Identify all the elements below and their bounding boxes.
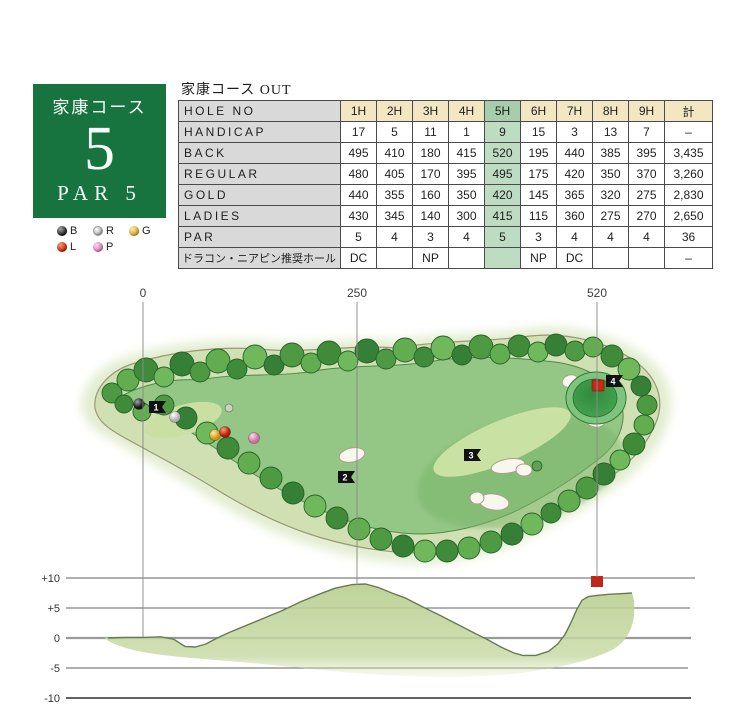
par-label: PAR 5 (33, 181, 166, 206)
legend-item-ladies: L (57, 241, 93, 253)
cell: 410 (377, 143, 413, 164)
legend-item-gold: G (129, 225, 165, 237)
cell: 4 (377, 227, 413, 248)
cell: 7 (629, 122, 665, 143)
course-plan: 1 2 3 4 (81, 327, 671, 563)
cell: 5 (377, 122, 413, 143)
tee-positions (134, 399, 260, 444)
elevation-profile: +10 +5 0 -5 -10 (41, 573, 695, 705)
cell: 270 (629, 206, 665, 227)
hole-marker-2: 2 (338, 471, 355, 483)
cell: 計 (665, 101, 713, 122)
table-row-ladies: LADIES 430 345 140 300 415 115 360 275 2… (179, 206, 713, 227)
cell: – (665, 248, 713, 269)
cell (629, 248, 665, 269)
cell: 275 (593, 206, 629, 227)
cell: 9H (629, 101, 665, 122)
cell: – (665, 122, 713, 143)
bunkers (338, 373, 607, 512)
cell: 370 (629, 164, 665, 185)
legend-label: R (106, 225, 114, 237)
distance-label-520: 520 (587, 286, 607, 300)
cell: 2,830 (665, 185, 713, 206)
cell: 345 (377, 206, 413, 227)
cell-highlight (485, 248, 521, 269)
hole-number: 5 (33, 120, 166, 178)
cell: 8H (593, 101, 629, 122)
tee-dot-silver-icon (93, 226, 103, 236)
cell (377, 248, 413, 269)
cell: 415 (449, 143, 485, 164)
cell: 395 (629, 143, 665, 164)
cell-highlight: 5 (485, 227, 521, 248)
cell: 365 (557, 185, 593, 206)
cell: 350 (449, 185, 485, 206)
elevation-area (105, 584, 634, 677)
ytick-zero: 0 (54, 633, 60, 645)
score-table-title: 家康コース OUT (181, 79, 292, 99)
light-strip (426, 394, 579, 490)
cell: 350 (593, 164, 629, 185)
svg-text:3: 3 (468, 451, 473, 461)
cell: 420 (557, 164, 593, 185)
svg-text:4: 4 (610, 377, 615, 387)
cell: 11 (413, 122, 449, 143)
cell: 145 (521, 185, 557, 206)
cell: 3,260 (665, 164, 713, 185)
cell: 195 (521, 143, 557, 164)
svg-text:2: 2 (342, 473, 347, 483)
course-title-box: 家康コース 5 PAR 5 (33, 84, 166, 218)
tee-ball-silver (170, 412, 181, 423)
cell: 440 (557, 143, 593, 164)
cell: 4 (629, 227, 665, 248)
putting-green (566, 372, 626, 424)
cell: 160 (413, 185, 449, 206)
legend-label: L (70, 241, 76, 253)
cell: 320 (593, 185, 629, 206)
green-flag-icon (592, 380, 604, 391)
cell: 5 (341, 227, 377, 248)
hole-marker-1: 1 (149, 401, 166, 413)
legend-label: P (106, 241, 113, 253)
row-label: ドラコン・ニアピン推奨ホール (179, 248, 341, 269)
cell: 480 (341, 164, 377, 185)
cell: 3,435 (665, 143, 713, 164)
row-label: REGULAR (179, 164, 341, 185)
row-label: PAR (179, 227, 341, 248)
cell: 275 (629, 185, 665, 206)
cell: DC (341, 248, 377, 269)
distance-label-0: 0 (140, 286, 147, 300)
cell: 1H (341, 101, 377, 122)
row-label: HOLE NO (179, 101, 341, 122)
tee-dot-black-icon (57, 226, 67, 236)
cell-highlight: 520 (485, 143, 521, 164)
cell: 3H (413, 101, 449, 122)
legend-label: B (70, 225, 77, 237)
cell-highlight: 5H (485, 101, 521, 122)
table-row-regular: REGULAR 480 405 170 395 495 175 420 350 … (179, 164, 713, 185)
tee-dot-red-icon (57, 242, 67, 252)
cell: 4H (449, 101, 485, 122)
row-label: BACK (179, 143, 341, 164)
ytick-minus10: -10 (44, 693, 60, 705)
cell: 495 (341, 143, 377, 164)
tee-area (140, 395, 225, 446)
table-row-back: BACK 495 410 180 415 520 195 440 385 395… (179, 143, 713, 164)
cell: 440 (341, 185, 377, 206)
tee-ball-red (220, 427, 231, 438)
cell (449, 248, 485, 269)
ytick-minus5: -5 (50, 663, 60, 675)
cell-highlight: 420 (485, 185, 521, 206)
cell: 6H (521, 101, 557, 122)
tee-dot-pink-icon (93, 242, 103, 252)
tee-ball-black (134, 399, 145, 410)
tee-dot-gold-icon (129, 226, 139, 236)
cell: 395 (449, 164, 485, 185)
cell: 385 (593, 143, 629, 164)
fairway (118, 357, 623, 534)
row-label: LADIES (179, 206, 341, 227)
table-row-gold: GOLD 440 355 160 350 420 145 365 320 275… (179, 185, 713, 206)
ytick-plus10: +10 (41, 573, 60, 585)
distance-label-250: 250 (347, 286, 367, 300)
table-row-holeno: HOLE NO 1H 2H 3H 4H 5H 6H 7H 8H 9H 計 (179, 101, 713, 122)
cell: 360 (557, 206, 593, 227)
table-row-handicap: HANDICAP 17 5 11 1 9 15 3 13 7 – (179, 122, 713, 143)
cell: 4 (557, 227, 593, 248)
tee-legend: B R G L P (57, 225, 165, 253)
hole-marker-4: 4 (606, 375, 623, 387)
cell-highlight: 415 (485, 206, 521, 227)
cell: 175 (521, 164, 557, 185)
cell (593, 248, 629, 269)
boundary-band (95, 335, 660, 553)
cell: 115 (521, 206, 557, 227)
cell: NP (521, 248, 557, 269)
cell: 36 (665, 227, 713, 248)
cell-highlight: 9 (485, 122, 521, 143)
cell: 4 (593, 227, 629, 248)
cell: 355 (377, 185, 413, 206)
cell: 4 (449, 227, 485, 248)
cell: DC (557, 248, 593, 269)
cell-highlight: 495 (485, 164, 521, 185)
distance-markers: 0 250 520 (140, 286, 608, 637)
cell: NP (413, 248, 449, 269)
pebble (225, 404, 233, 412)
cell: 13 (593, 122, 629, 143)
cell: 430 (341, 206, 377, 227)
legend-item-regular: R (93, 225, 129, 237)
cell: 3 (557, 122, 593, 143)
outer-wash (81, 327, 671, 563)
ytick-plus5: +5 (47, 603, 60, 615)
legend-label: G (142, 225, 151, 237)
score-table: HOLE NO 1H 2H 3H 4H 5H 6H 7H 8H 9H 計 HAN… (178, 100, 713, 269)
row-label: GOLD (179, 185, 341, 206)
bush (532, 461, 542, 471)
cell: 17 (341, 122, 377, 143)
fairway-shading (406, 396, 635, 548)
cell: 2H (377, 101, 413, 122)
cell: 3 (413, 227, 449, 248)
cell: 300 (449, 206, 485, 227)
cell: 2,650 (665, 206, 713, 227)
legend-item-pink: P (93, 241, 129, 253)
elevation-curve (108, 584, 632, 655)
cell: 170 (413, 164, 449, 185)
legend-item-back: B (57, 225, 93, 237)
cell: 180 (413, 143, 449, 164)
elevation-flag-icon (591, 576, 603, 587)
cell: 15 (521, 122, 557, 143)
table-row-par: PAR 5 4 3 4 5 3 4 4 4 36 (179, 227, 713, 248)
cell: 405 (377, 164, 413, 185)
table-row-recommended: ドラコン・ニアピン推奨ホール DC NP NP DC – (179, 248, 713, 269)
svg-text:1: 1 (153, 403, 158, 413)
tee-ball-gold (210, 430, 221, 441)
tree-ring (102, 334, 657, 562)
hole-guide-page: 家康コース 5 PAR 5 B R G L P 家康コース OUT (0, 0, 740, 705)
cell: 140 (413, 206, 449, 227)
row-label: HANDICAP (179, 122, 341, 143)
cell: 3 (521, 227, 557, 248)
tee-ball-pink (249, 433, 260, 444)
hole-marker-3: 3 (464, 449, 481, 461)
cell: 7H (557, 101, 593, 122)
cell: 1 (449, 122, 485, 143)
